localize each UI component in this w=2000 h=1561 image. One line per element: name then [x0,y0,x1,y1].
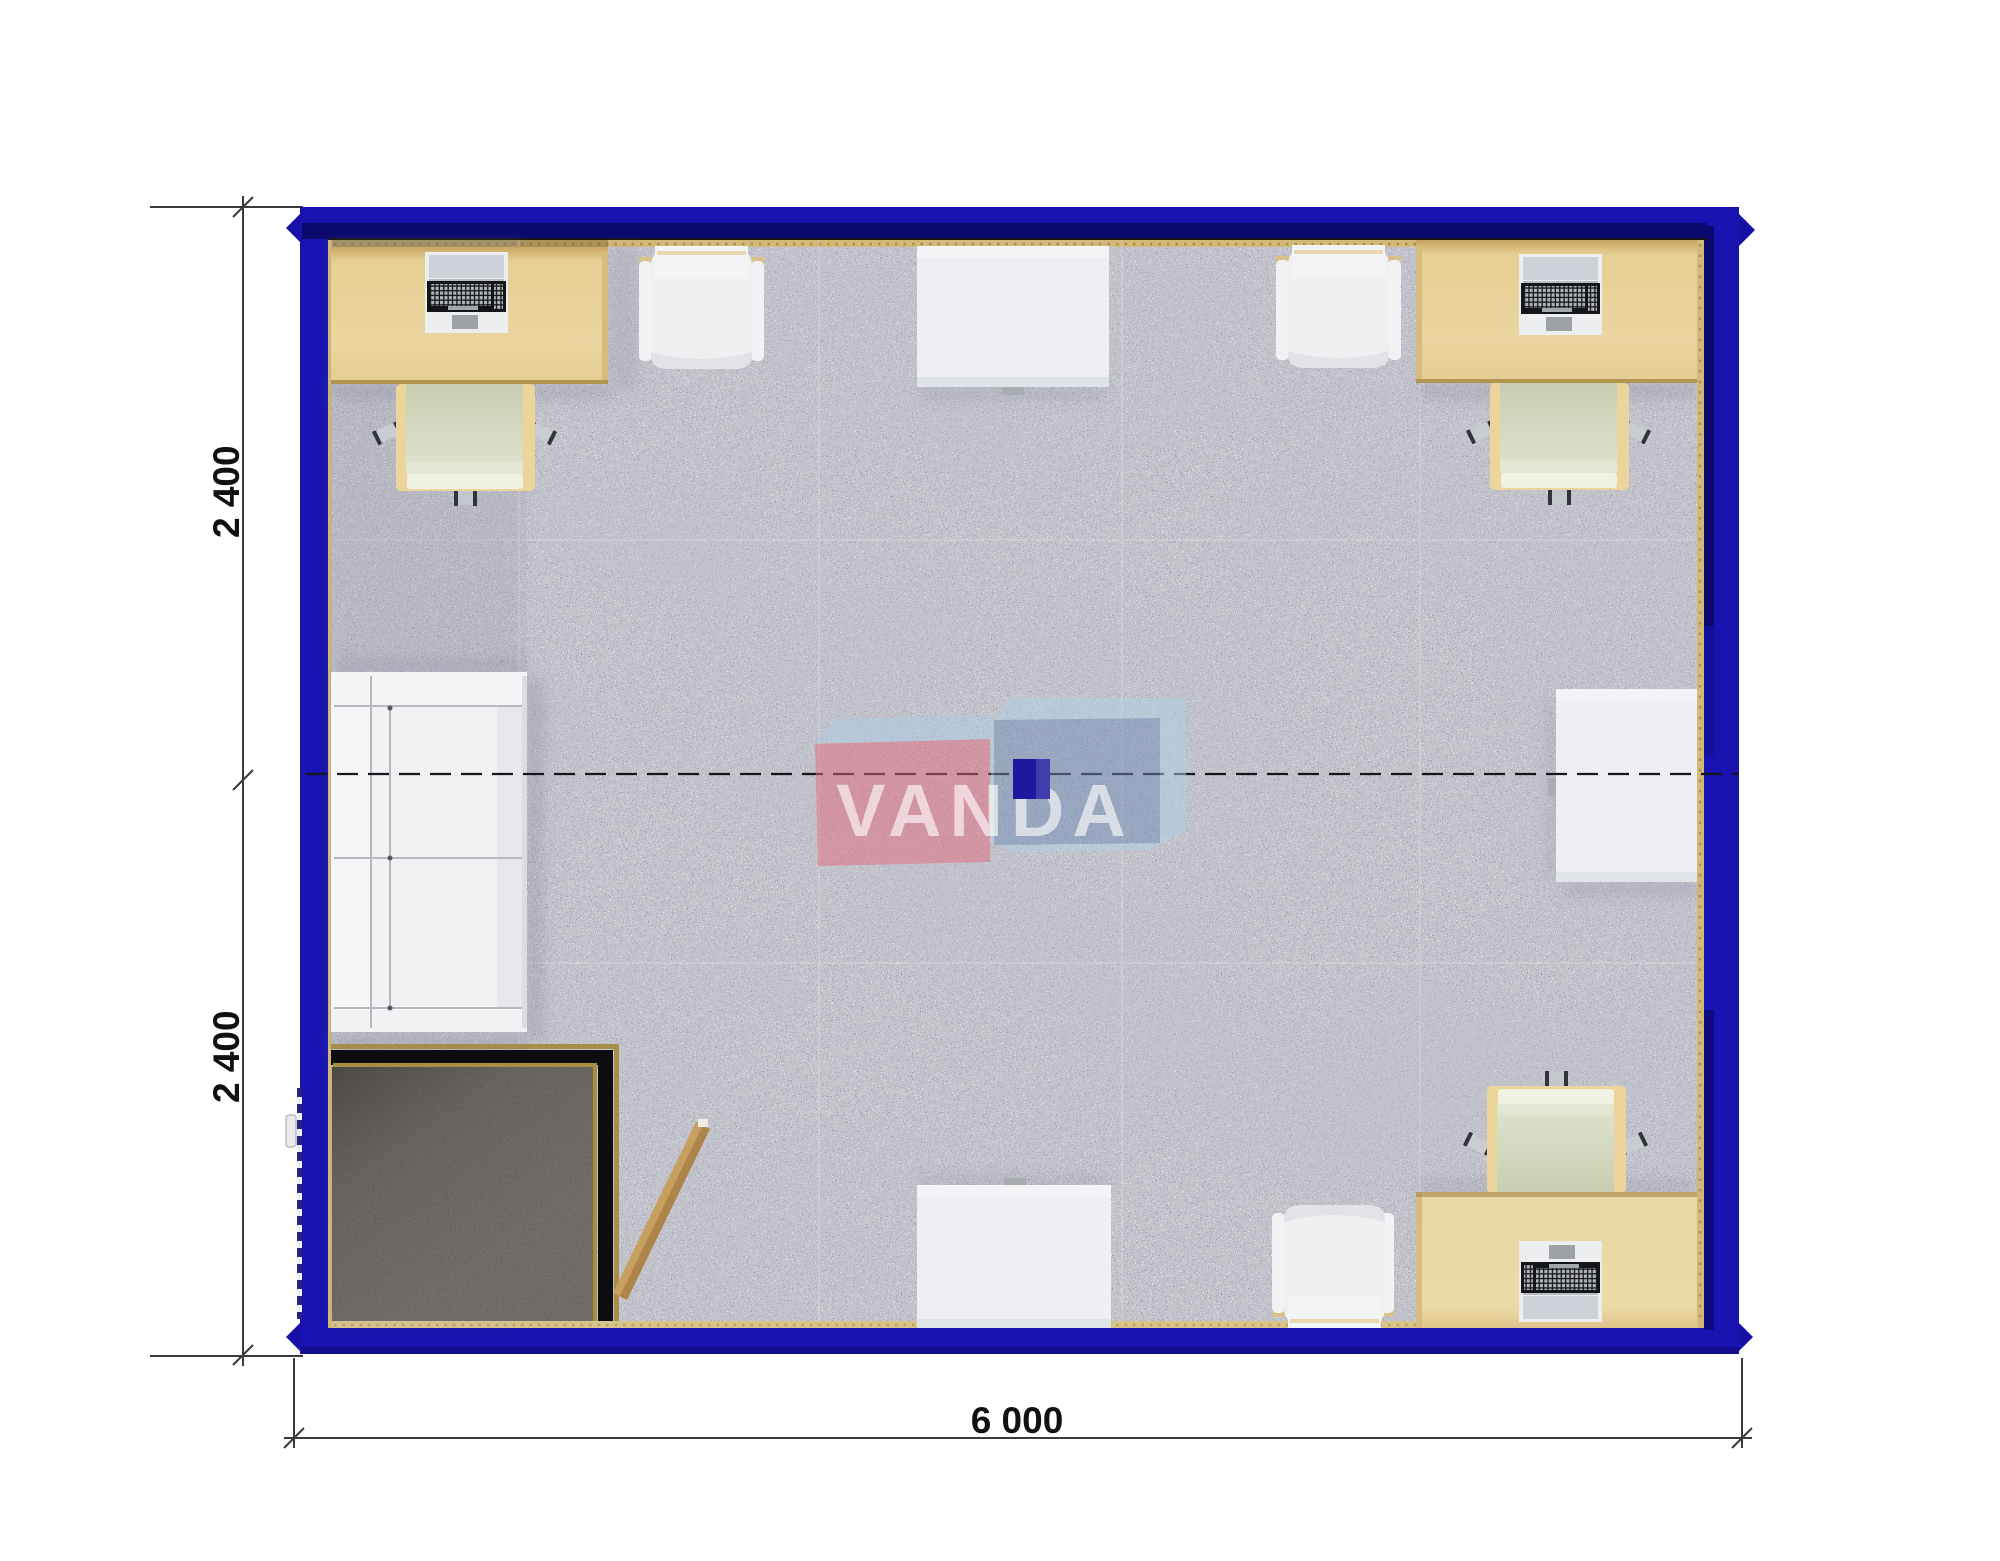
svg-text:2 400: 2 400 [206,445,247,538]
svg-text:VANDA: VANDA [836,769,1134,852]
svg-text:6 000: 6 000 [971,1400,1064,1441]
svg-text:2 400: 2 400 [206,1010,247,1103]
